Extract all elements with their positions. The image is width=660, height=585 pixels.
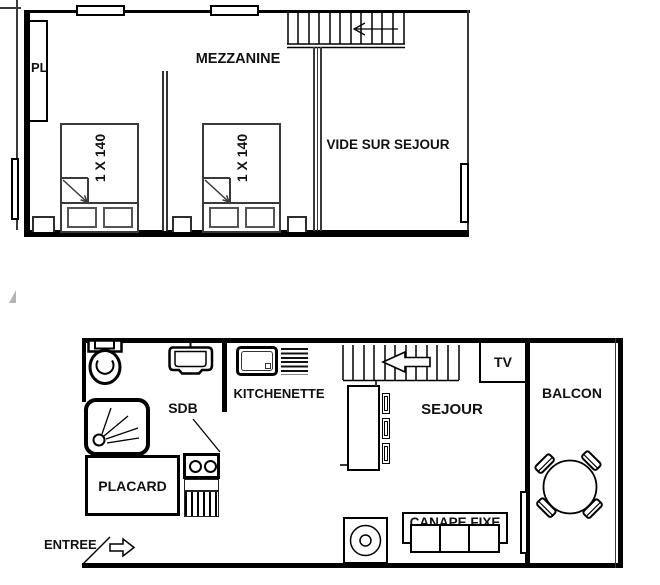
kitchen-drainer xyxy=(281,348,308,375)
counter-table xyxy=(347,385,380,471)
wall-stub-1 xyxy=(32,216,55,232)
washbasin-icon xyxy=(166,338,216,380)
tv-label: TV xyxy=(494,354,512,370)
mezzanine-window-top-1 xyxy=(76,5,125,16)
tv-cabinet: TV xyxy=(479,343,525,383)
stove-burner-right xyxy=(204,460,217,473)
toilet-icon xyxy=(86,339,126,387)
shower-icon xyxy=(84,398,150,456)
bed-1-pillow-left xyxy=(67,207,97,228)
counter-tick-left xyxy=(340,464,347,466)
balcony-door xyxy=(520,491,528,554)
living-staircase-icon xyxy=(342,343,460,383)
balcony-right-wall xyxy=(618,338,623,568)
balcony-round-table xyxy=(544,461,597,514)
chair-seat xyxy=(384,421,388,436)
mezzanine-window-left xyxy=(11,158,19,220)
sofa-cushion-2 xyxy=(439,524,470,553)
counter-tick-top xyxy=(375,381,377,386)
stove-top xyxy=(183,453,220,479)
bed-2-label: 1 X 140 xyxy=(234,134,250,182)
stair-wall-line-3 xyxy=(320,47,322,231)
chair-seat xyxy=(384,396,388,411)
balcony-table-set-icon xyxy=(533,448,613,528)
bed-2: 1 X 140 xyxy=(202,123,281,233)
balcony-right-thin-line xyxy=(615,338,616,568)
mezzanine-room-label: MEZZANINE xyxy=(183,51,293,67)
stove-vent-grille xyxy=(184,491,219,517)
wall-stub-2 xyxy=(172,216,192,232)
kitchenette-label: KITCHENETTE xyxy=(233,386,325,401)
stair-wall-line-2 xyxy=(317,47,319,231)
chair-seat xyxy=(384,446,388,461)
stairs-up-arrow xyxy=(354,23,398,35)
kitchen-sink xyxy=(236,346,278,376)
living-room-label: SEJOUR xyxy=(399,401,505,418)
bathroom-leader-line xyxy=(192,418,222,454)
kitchen-sink-drain xyxy=(265,363,271,369)
stove-burner-left xyxy=(189,460,202,473)
mezzanine-window-right xyxy=(460,163,469,223)
apartment-floor-plan: PL MEZZANINE VIDE SUR SEJOUR 1 X 1 xyxy=(0,0,660,585)
mezzanine-staircase-icon xyxy=(287,13,405,49)
sofa-cushion-1 xyxy=(410,524,441,553)
scan-smudge xyxy=(8,288,18,306)
wall-stub-3 xyxy=(287,216,307,232)
exterior-tick-top xyxy=(0,7,21,9)
bed-1-label: 1 X 140 xyxy=(92,134,108,182)
counter-chair-1 xyxy=(382,393,390,414)
placard-label: PLACARD xyxy=(98,478,166,494)
placard-closet: PLACARD xyxy=(85,455,180,516)
balcony-label: BALCON xyxy=(532,385,612,401)
bed-2-pillow-right xyxy=(245,207,275,228)
bed-1-pillow-right xyxy=(103,207,133,228)
entrance-arrow-icon xyxy=(78,530,140,568)
bathroom-kitchen-wall xyxy=(222,338,227,412)
mezzanine-window-top-2 xyxy=(210,5,259,16)
counter-chair-3 xyxy=(382,443,390,464)
stove-mid-band xyxy=(184,479,219,491)
void-over-living-label: VIDE SUR SEJOUR xyxy=(318,137,458,152)
bed-1: 1 X 140 xyxy=(60,123,139,233)
bed-2-pillow-left xyxy=(209,207,239,228)
mezzanine-closet: PL xyxy=(28,20,48,122)
side-table xyxy=(343,517,388,564)
bathroom-label: SDB xyxy=(157,400,209,416)
sofa-cushion-3 xyxy=(468,524,500,553)
stair-wall-line-1 xyxy=(313,47,315,231)
bed-divider-wall xyxy=(162,71,168,231)
counter-chair-2 xyxy=(382,418,390,439)
closet-label: PL xyxy=(31,60,48,75)
